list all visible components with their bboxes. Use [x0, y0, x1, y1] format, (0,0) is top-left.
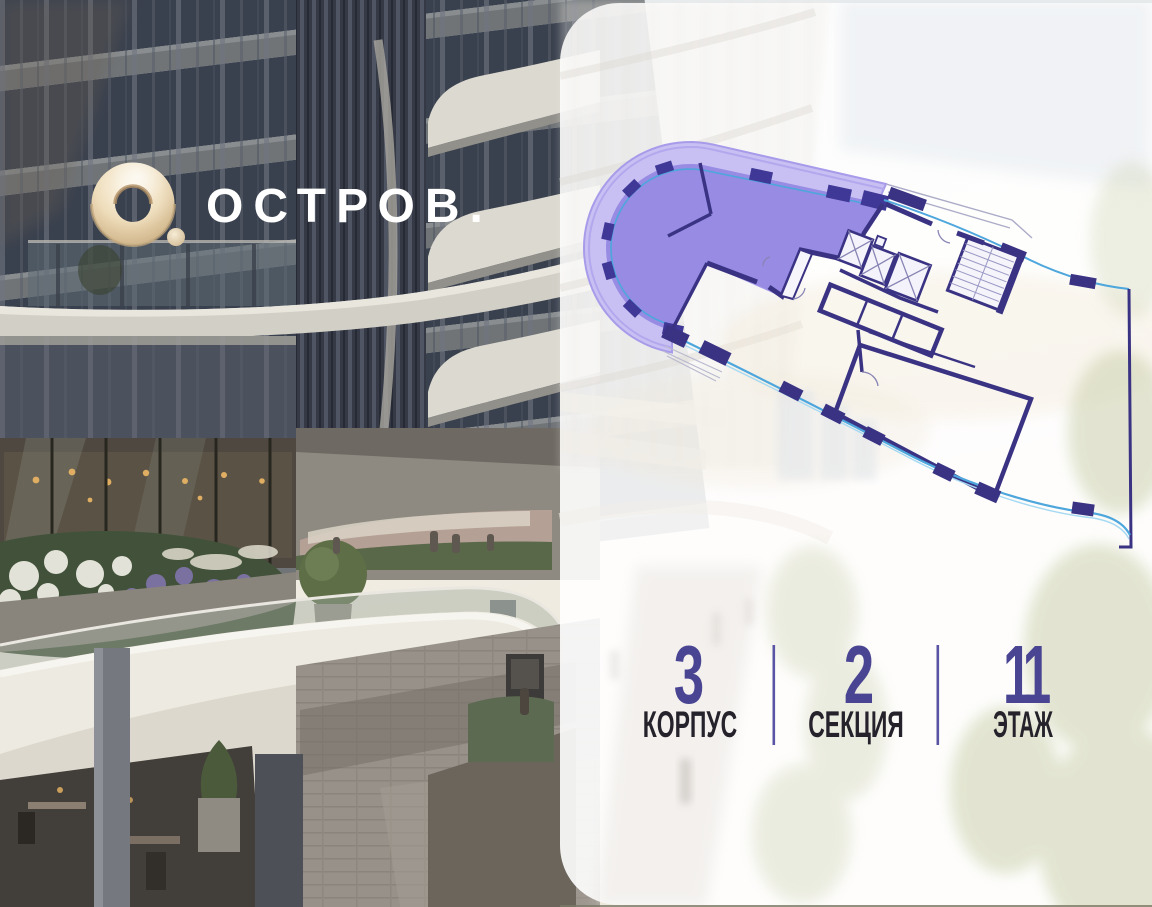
svg-text:СЕКЦИЯ: СЕКЦИЯ: [808, 703, 904, 745]
svg-text:ЭТАЖ: ЭТАЖ: [993, 705, 1053, 746]
svg-text:ОСТРОВ.: ОСТРОВ.: [206, 180, 493, 233]
svg-text:КОРПУС: КОРПУС: [643, 703, 737, 745]
